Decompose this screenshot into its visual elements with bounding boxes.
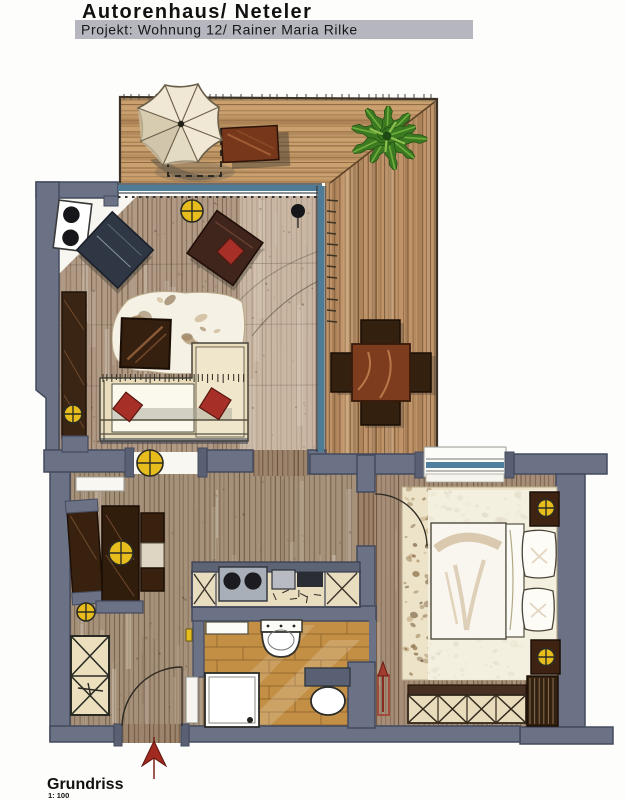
svg-text:Projekt: Wohnung 12/ Rainer M: Projekt: Wohnung 12/ Rainer Maria Rilke	[81, 22, 358, 38]
svg-text:Autorenhaus/ Neteler: Autorenhaus/ Neteler	[82, 1, 312, 23]
svg-text:1: 100: 1: 100	[48, 791, 69, 800]
